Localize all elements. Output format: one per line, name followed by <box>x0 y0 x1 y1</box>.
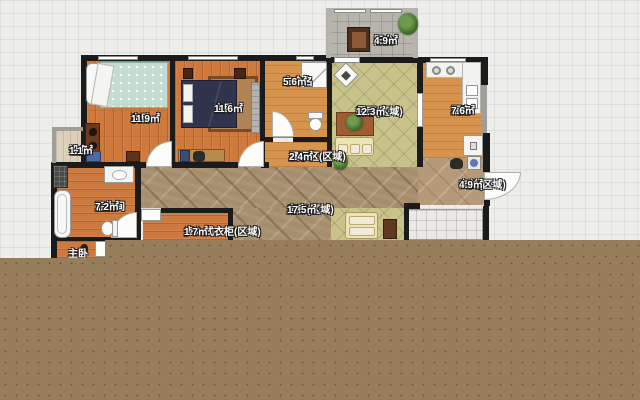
bed-pillow <box>183 84 193 102</box>
blue-box[interactable] <box>180 150 190 162</box>
fridge[interactable] <box>463 135 483 156</box>
door-leaf-brown[interactable] <box>383 219 397 239</box>
floorplan-canvas: 阳台4.9㎡ 次卧11.9㎡ 次卧11.6㎡ 未命名5.6㎡ 餐厅(区域)12.… <box>0 0 640 400</box>
wall-kitchen-right-grey <box>482 85 487 135</box>
bath-heater-unit[interactable] <box>53 165 68 188</box>
window-bedroom-left <box>98 56 138 60</box>
basin-bowl <box>112 170 127 180</box>
wall-equip-top <box>53 127 83 131</box>
wall-closet-top <box>161 208 230 213</box>
wall-dining-kitchen-b <box>417 127 423 167</box>
washing-machine[interactable] <box>467 156 481 170</box>
entry-stool[interactable] <box>450 158 463 169</box>
balcony-plant[interactable] <box>398 13 418 35</box>
stove-burner <box>446 66 455 75</box>
washer-drum <box>470 159 478 167</box>
room-entry-bath[interactable] <box>405 209 483 240</box>
room-corridor[interactable] <box>136 167 420 208</box>
wall-unnamed-bottom-b <box>293 137 331 142</box>
wall-entrybath-left <box>404 203 409 240</box>
balcony-rail-left <box>326 8 331 58</box>
sofa-lower[interactable] <box>345 212 378 239</box>
unrendered-area-cover <box>0 258 640 400</box>
window-balcony-a <box>334 9 366 13</box>
closet-door-panel[interactable] <box>141 209 161 221</box>
desk-chair[interactable] <box>193 151 205 162</box>
table-decor <box>341 71 351 81</box>
unrendered-area-cover-band <box>105 240 640 258</box>
wall-master-left <box>51 237 57 258</box>
toilet-unnamed-bowl <box>309 118 322 131</box>
wall-dining-kitchen-a <box>417 63 423 93</box>
wall-entrybath-right <box>483 206 489 240</box>
wall-kitchen-right-top <box>481 57 488 85</box>
balcony-cabinet[interactable] <box>347 27 370 52</box>
cabinet-inner <box>352 32 366 48</box>
balcony-door-opening <box>334 57 360 63</box>
wall-beds-bottom-b <box>172 162 238 168</box>
door-kitchen[interactable] <box>417 93 423 127</box>
stove-burner <box>432 66 441 75</box>
wardrobe-item <box>89 128 97 136</box>
window-bedroom-mid <box>188 56 238 60</box>
wall-entry-right-top <box>483 133 490 172</box>
fridge-glyph <box>470 142 477 150</box>
window-balcony-b <box>370 9 402 13</box>
tub-inner <box>57 194 67 234</box>
wall-unnamed-bottom-a <box>263 137 273 142</box>
wall-equip-left <box>52 127 56 165</box>
toilet-tank <box>112 220 118 237</box>
nightstand-b[interactable] <box>234 68 246 79</box>
wardrobe-grey[interactable] <box>251 82 260 134</box>
sink <box>466 85 478 96</box>
wall-unnamed-dining <box>327 57 332 167</box>
bed-pillow <box>183 105 193 123</box>
nightstand-a[interactable] <box>183 68 193 79</box>
bathtub[interactable] <box>54 190 71 238</box>
washbasin[interactable] <box>104 166 134 183</box>
kitchen-counter-stove[interactable] <box>426 62 464 78</box>
window-unnamed <box>296 56 314 60</box>
nightstand-bedroom-left[interactable] <box>126 151 140 162</box>
